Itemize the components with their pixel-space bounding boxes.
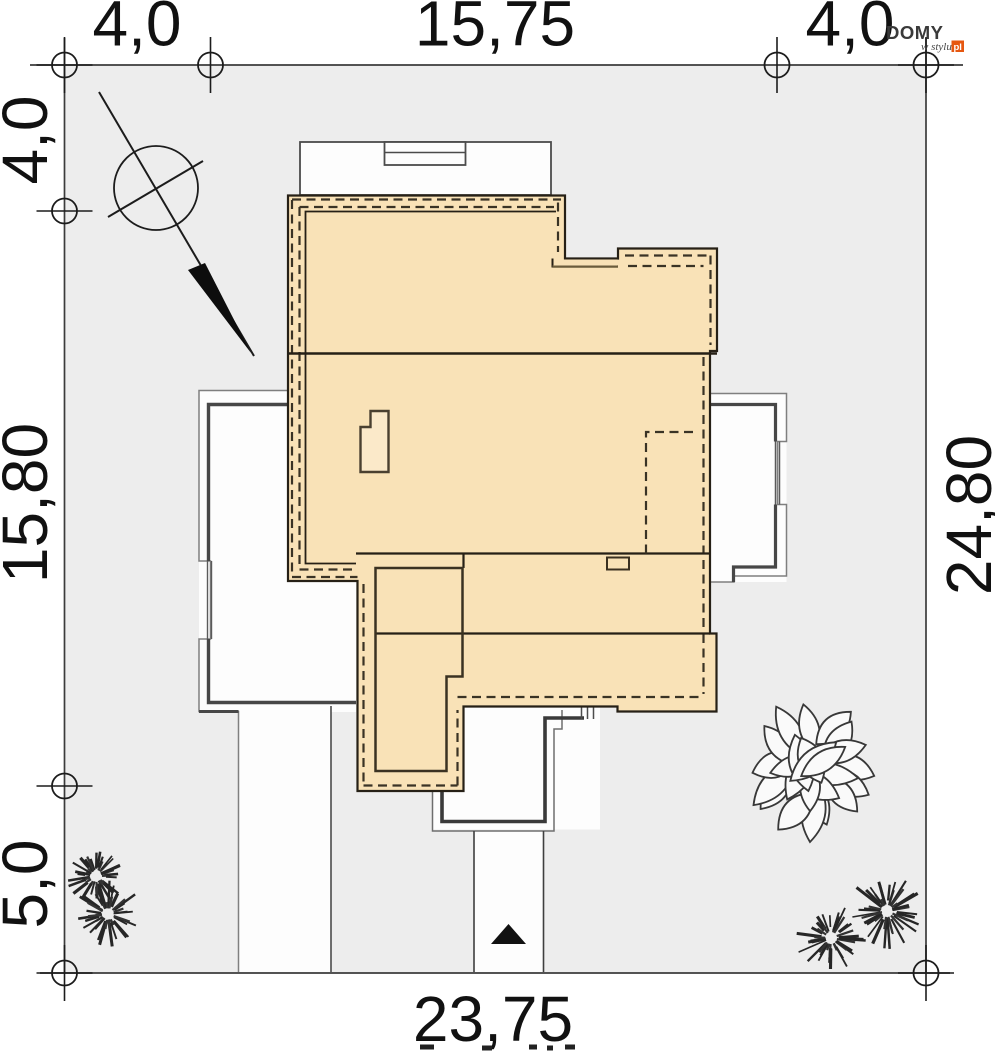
svg-text:4,0: 4,0 — [0, 96, 61, 185]
svg-text:w stylu: w stylu — [921, 41, 952, 53]
svg-text:23,75: 23,75 — [413, 983, 573, 1051]
svg-text:15,75: 15,75 — [415, 0, 575, 60]
svg-text:24,80: 24,80 — [933, 435, 995, 595]
svg-text:4,0: 4,0 — [93, 0, 182, 60]
svg-text:5,0: 5,0 — [0, 840, 61, 929]
svg-text:pl: pl — [953, 42, 961, 53]
svg-text:4,0: 4,0 — [806, 0, 895, 60]
svg-text:15,80: 15,80 — [0, 423, 61, 583]
svg-text:DOMY: DOMY — [886, 22, 944, 43]
